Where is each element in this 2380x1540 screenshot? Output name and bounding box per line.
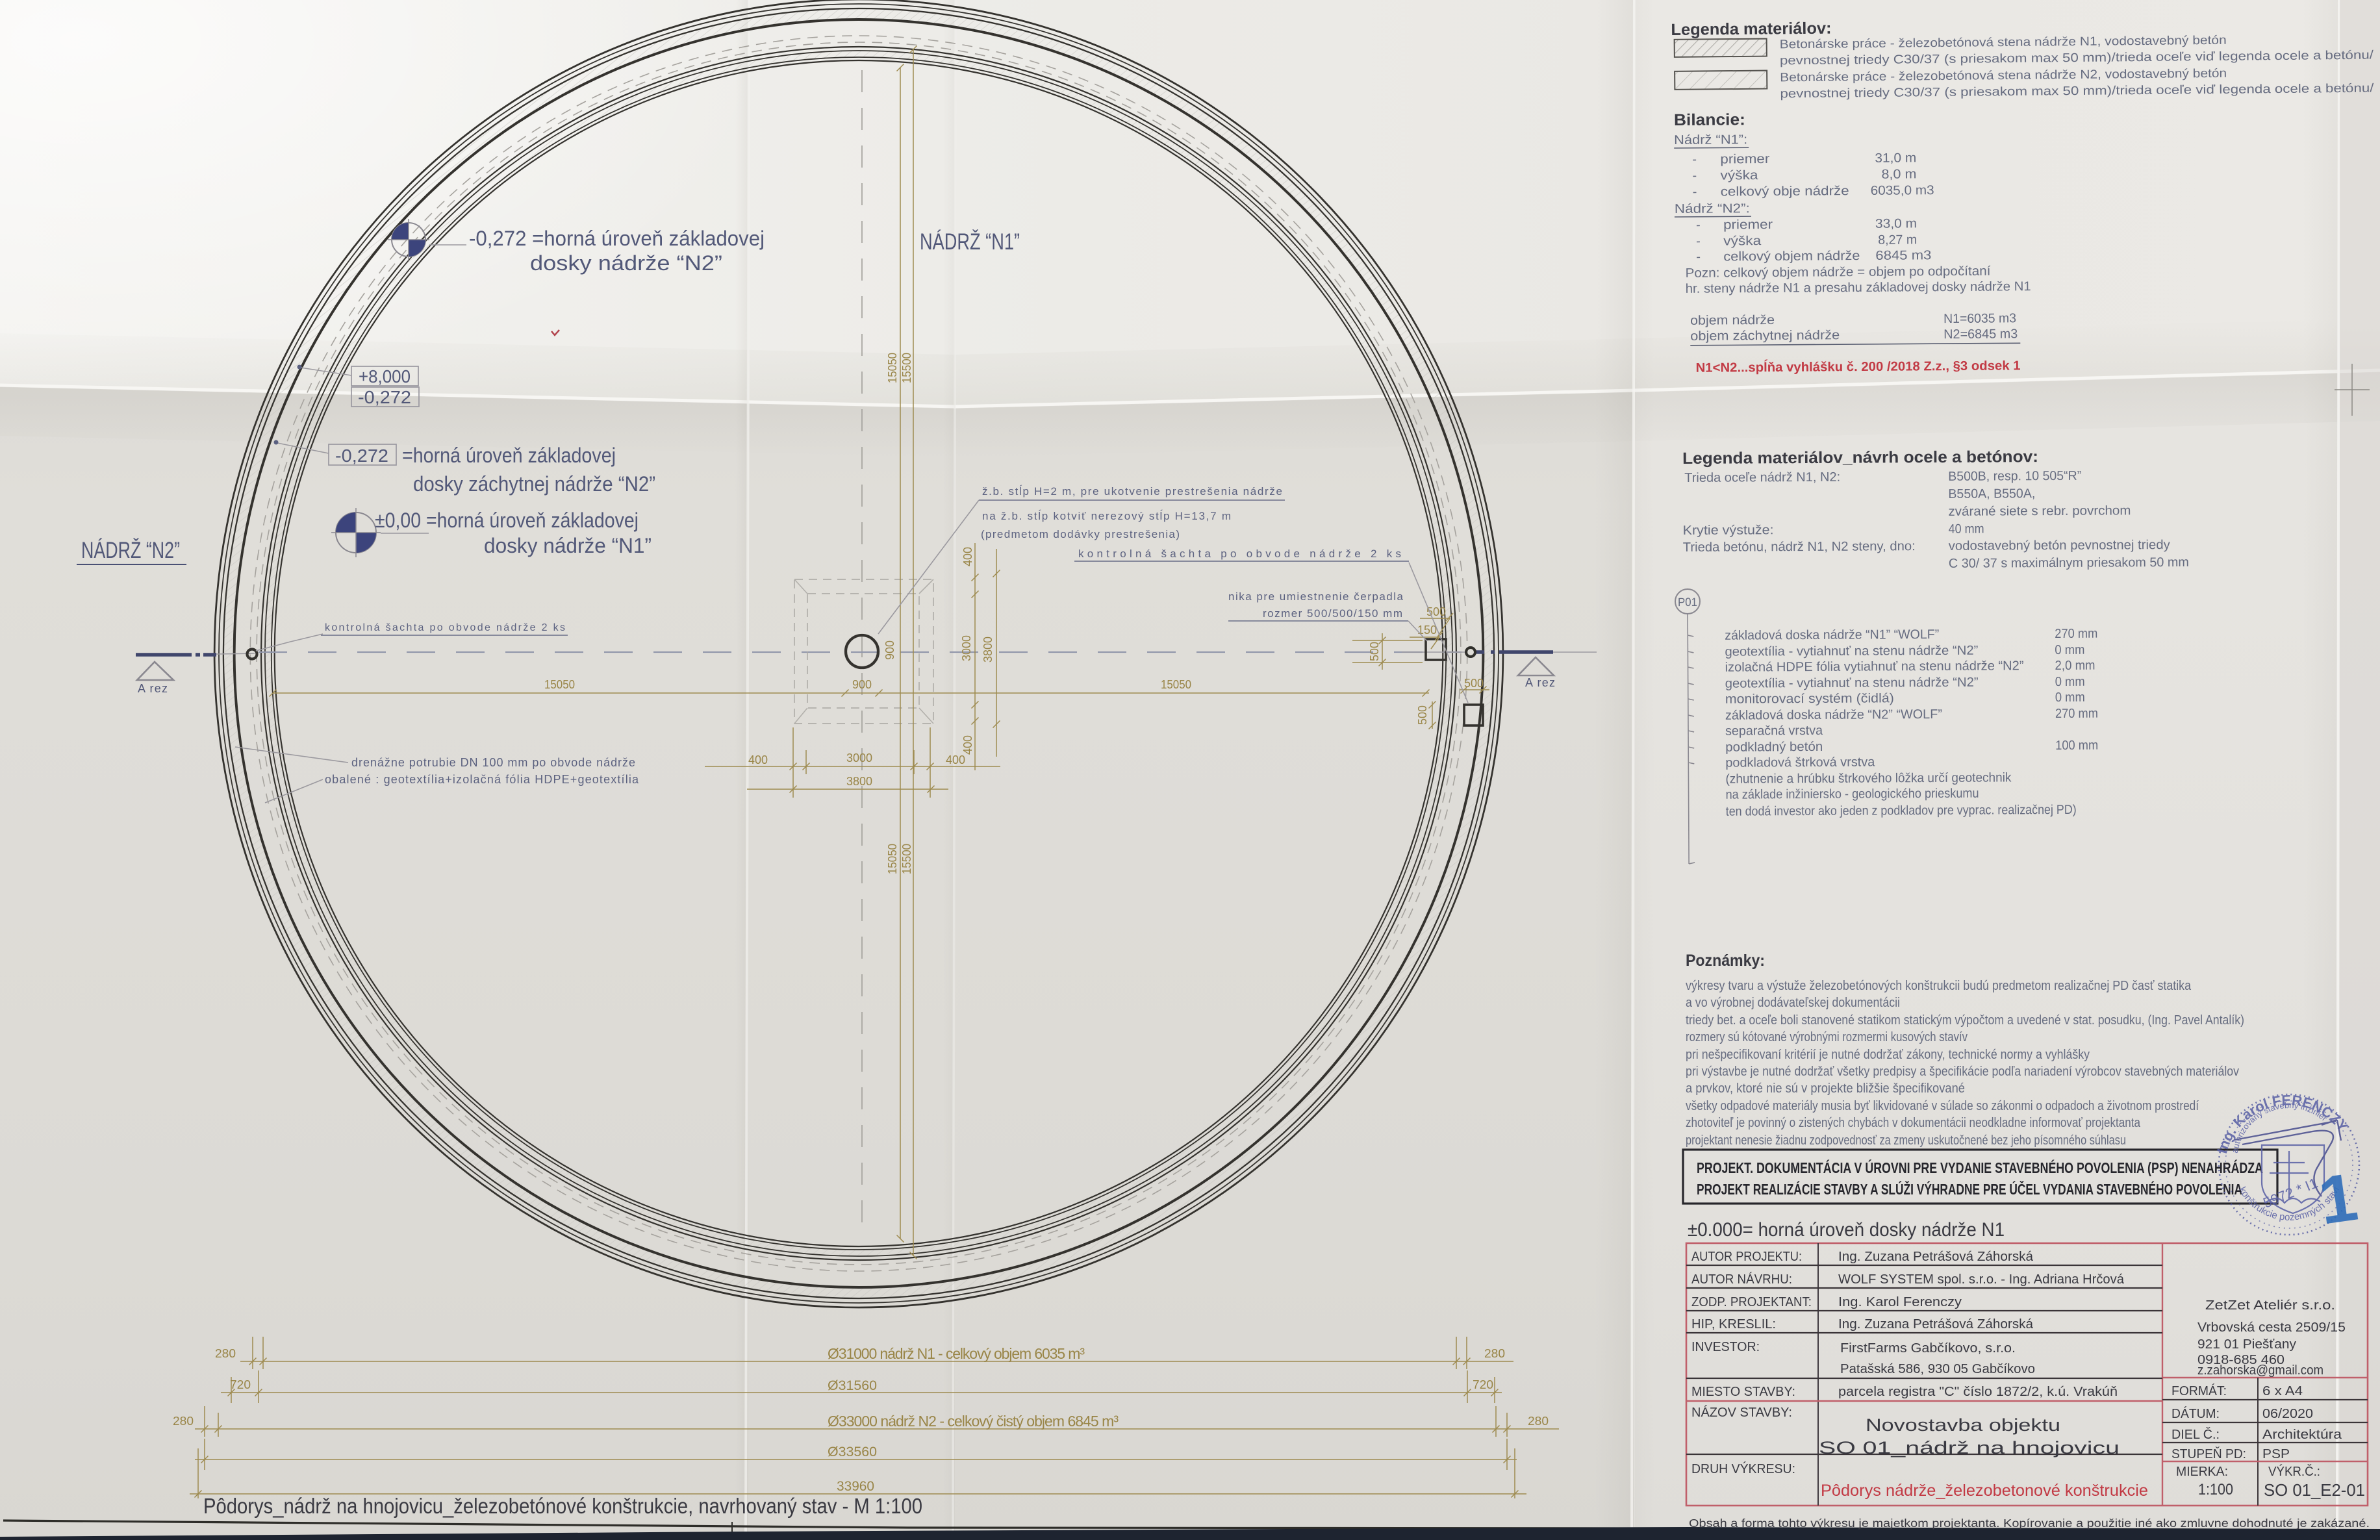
svg-text:8,0 m: 8,0 m (1881, 167, 1916, 181)
svg-text:720: 720 (230, 1378, 251, 1391)
svg-text:Novostavba objektu: Novostavba objektu (1866, 1415, 2060, 1435)
svg-text:Patašská 586, 930 05 Gabčíkovo: Patašská 586, 930 05 Gabčíkovo (1840, 1362, 2035, 1376)
svg-text:ZODP. PROJEKTANT:: ZODP. PROJEKTANT: (1691, 1295, 1812, 1309)
svg-text:SO 01_nádrž na hnojovicu: SO 01_nádrž na hnojovicu (1819, 1438, 2120, 1458)
svg-text:Bilancie:: Bilancie: (1674, 110, 1745, 129)
svg-text:6845 m3: 6845 m3 (1875, 248, 1931, 263)
svg-text:MIESTO STAVBY:: MIESTO STAVBY: (1691, 1385, 1795, 1399)
svg-text:PROJEKT REALIZÁCIE STAVBY A SL: PROJEKT REALIZÁCIE STAVBY A SLÚŽI VÝHRAD… (1697, 1180, 2242, 1198)
svg-text:drenážne potrubie DN 100 mm po: drenážne potrubie DN 100 mm po obvode ná… (351, 756, 635, 769)
svg-text:6 x A4: 6 x A4 (2262, 1384, 2303, 1398)
svg-text:vodostavebný betón pevnostnej: vodostavebný betón pevnostnej triedy (1949, 538, 2170, 553)
svg-text:Ø31560: Ø31560 (828, 1378, 877, 1393)
svg-text:všetky odpadové materiály musi: všetky odpadové materiály musia byť likv… (1686, 1099, 2199, 1113)
svg-text:Legenda materiálov:: Legenda materiálov: (1671, 19, 1831, 39)
svg-text:500: 500 (1368, 642, 1381, 661)
svg-text:Krytie výstuže:: Krytie výstuže: (1683, 523, 1774, 538)
svg-text:500: 500 (1416, 705, 1429, 725)
svg-text:280: 280 (173, 1415, 194, 1428)
svg-text:geotextília - vytiahnuť na ste: geotextília - vytiahnuť na stenu nádrže … (1725, 644, 1978, 659)
svg-text:DIEL Č.:: DIEL Č.: (2171, 1427, 2220, 1442)
svg-text:150: 150 (1417, 624, 1437, 637)
svg-text:-: - (1693, 185, 1697, 199)
svg-text:N2=6845 m3: N2=6845 m3 (1943, 327, 2018, 342)
svg-text:PSP: PSP (2262, 1447, 2290, 1461)
svg-text:Trieda oceľe nádrž N1, N2:: Trieda oceľe nádrž N1, N2: (1684, 470, 1840, 485)
svg-text:40 mm: 40 mm (1949, 522, 1984, 536)
svg-text:podkladný betón: podkladný betón (1725, 740, 1823, 755)
svg-text:Pozn: celkový objem nádrže = o: Pozn: celkový objem nádrže = objem po od… (1685, 264, 1991, 281)
svg-text:400: 400 (748, 753, 768, 766)
svg-text:na základe inžiniersko - geolo: na základe inžiniersko - geologického pr… (1726, 787, 1979, 802)
svg-text:15500: 15500 (900, 844, 913, 874)
svg-text:0 mm: 0 mm (2055, 690, 2085, 705)
svg-text:06/2020: 06/2020 (2262, 1407, 2313, 1421)
svg-text:triedy bet. a oceľe boli stano: triedy bet. a oceľe boli stanovené stati… (1686, 1013, 2244, 1028)
svg-text:NÁDRŽ “N2”: NÁDRŽ “N2” (81, 538, 180, 563)
svg-text:+8,000: +8,000 (359, 366, 411, 386)
svg-text:15500: 15500 (900, 353, 913, 383)
svg-text:270 mm: 270 mm (2055, 627, 2097, 641)
svg-text:Obsah a forma tohto výkresu je: Obsah a forma tohto výkresu je majetkom … (1689, 1517, 2370, 1530)
svg-text:Ø33560: Ø33560 (828, 1445, 877, 1459)
svg-text:0 mm: 0 mm (2055, 643, 2084, 657)
svg-text:VÝKR.Č.:: VÝKR.Č.: (2268, 1464, 2320, 1479)
svg-text:(zhutnenie a hrúbku štrkového: (zhutnenie a hrúbku štrkového lôžka určí… (1725, 770, 2012, 786)
svg-text:separačná vrstva: separačná vrstva (1725, 724, 1823, 738)
svg-text:ten dodá investor ako jeden z: ten dodá investor ako jeden z podkladov … (1726, 803, 2077, 819)
svg-text:33960: 33960 (837, 1479, 874, 1494)
svg-text:(predmetom dodávky prestrešeni: (predmetom dodávky prestrešenia) (981, 528, 1180, 540)
svg-text:hr. steny nádrže N1 a presahu: hr. steny nádrže N1 a presahu základovej… (1686, 279, 2031, 296)
svg-text:400: 400 (961, 735, 974, 755)
svg-text:na ž.b. stĺp kotviť nerezový s: na ž.b. stĺp kotviť nerezový stĺp H=13,7… (982, 510, 1231, 522)
svg-text:DRUH VÝKRESU:: DRUH VÝKRESU: (1691, 1461, 1795, 1476)
svg-text:celkový obje nádrže: celkový obje nádrže (1721, 184, 1849, 199)
svg-text:výška: výška (1723, 234, 1762, 248)
svg-text:INVESTOR:: INVESTOR: (1691, 1340, 1760, 1354)
svg-text:nika pre umiestnenie čerpadla: nika pre umiestnenie čerpadla (1228, 590, 1404, 603)
svg-text:15050: 15050 (1161, 678, 1191, 691)
svg-text:základová doska nádrže “N2” “W: základová doska nádrže “N2” “WOLF” (1725, 707, 1942, 723)
svg-text:WOLF SYSTEM spol. s.r.o. - Ing: WOLF SYSTEM spol. s.r.o. - Ing. Adriana … (1838, 1272, 2125, 1287)
svg-text:±0.000= horná úroveň dosky nád: ±0.000= horná úroveň dosky nádrže N1 (1688, 1219, 2005, 1241)
svg-text:-: - (1696, 234, 1701, 249)
svg-text:Ing. Zuzana Petrášová Záhorská: Ing. Zuzana Petrášová Záhorská (1838, 1317, 2034, 1332)
svg-text:priemer: priemer (1723, 218, 1773, 233)
svg-text:Ø31000 nádrž N1 - celkový obj: Ø31000 nádrž N1 - celkový objem 6035 m³ (828, 1345, 1085, 1362)
svg-text:Legenda materiálov_návrh ocele: Legenda materiálov_návrh ocele a betónov… (1682, 448, 2038, 468)
svg-text:N1=6035 m3: N1=6035 m3 (1943, 311, 2016, 326)
svg-text:izolačná HDPE fólia vytiahnuť: izolačná HDPE fólia vytiahnuť na stenu n… (1725, 659, 2023, 674)
svg-text:ZetZet Ateliér s.r.o.: ZetZet Ateliér s.r.o. (2205, 1298, 2335, 1313)
svg-text:280: 280 (1484, 1347, 1505, 1360)
svg-text:280: 280 (1528, 1415, 1549, 1428)
svg-text:dosky záchytnej nádrže “N2”: dosky záchytnej nádrže “N2” (413, 472, 655, 496)
svg-text:obalené : geotextília+izolačná: obalené : geotextília+izolačná fólia HDP… (325, 773, 639, 786)
svg-text:Ø33000 nádrž N2 - celkový čist: Ø33000 nádrž N2 - celkový čistý objem 68… (828, 1413, 1119, 1430)
svg-text:Vrbovská cesta 2509/15: Vrbovská cesta 2509/15 (2197, 1320, 2346, 1335)
svg-text:N1<N2...spĺňa vyhlášku č. 200: N1<N2...spĺňa vyhlášku č. 200 /2018 Z.z.… (1695, 357, 2020, 375)
svg-text:2,0 mm: 2,0 mm (2055, 659, 2095, 673)
svg-text:FirstFarms Gabčíkovo, s.r.o.: FirstFarms Gabčíkovo, s.r.o. (1840, 1341, 2016, 1356)
svg-text:Trieda betónu, nádrž N1, N2 st: Trieda betónu, nádrž N1, N2 steny, dno: (1683, 539, 1916, 555)
svg-text:podkladová štrková vrstva: podkladová štrková vrstva (1725, 755, 1875, 770)
svg-text:33,0 m: 33,0 m (1875, 216, 1917, 231)
svg-text:ž.b. stĺp H=2 m, pre ukotvenie: ž.b. stĺp H=2 m, pre ukotvenie prestreše… (982, 485, 1282, 498)
svg-text:31,0 m: 31,0 m (1875, 151, 1916, 165)
svg-text:DÁTUM:: DÁTUM: (2171, 1406, 2220, 1421)
svg-text:celkový objem nádrže: celkový objem nádrže (1723, 249, 1860, 264)
svg-text:921 01 Piešťany: 921 01 Piešťany (2197, 1337, 2296, 1352)
svg-text:=horná úroveň základovej: =horná úroveň základovej (402, 444, 616, 467)
svg-text:Ing. Zuzana Petrášová Záhorská: Ing. Zuzana Petrášová Záhorská (1838, 1250, 2034, 1264)
svg-text:3800: 3800 (846, 775, 872, 788)
svg-text:monitorovací systém (čidlá): monitorovací systém (čidlá) (1725, 691, 1894, 706)
svg-text:-: - (1696, 218, 1701, 233)
svg-text:dosky nádrže “N2”: dosky nádrže “N2” (530, 251, 722, 275)
svg-text:Pôdorys nádrže_železobetonové: Pôdorys nádrže_železobetonové konštrukci… (1821, 1482, 2148, 1500)
svg-text:Poznámky:: Poznámky: (1686, 952, 1765, 970)
svg-text:720: 720 (1473, 1378, 1493, 1391)
svg-text:AUTOR NÁVRHU:: AUTOR NÁVRHU: (1691, 1272, 1792, 1287)
svg-text:zhotoviteľ je povinný o zisten: zhotoviteľ je povinný o zistených chybác… (1686, 1116, 2141, 1130)
svg-text:pri nešpecifikovaní kritérií j: pri nešpecifikovaní kritérií je nutné do… (1686, 1048, 2090, 1062)
svg-text:280: 280 (215, 1347, 236, 1360)
svg-text:3000: 3000 (846, 751, 872, 764)
svg-text:HIP, KRESLIL:: HIP, KRESLIL: (1691, 1317, 1776, 1332)
svg-text:a prvkov, ktoré nie sú v proje: a prvkov, ktoré nie sú v projekte bližši… (1686, 1081, 1965, 1096)
svg-text:400: 400 (961, 547, 974, 566)
svg-text:P01: P01 (1678, 596, 1697, 609)
svg-text:A rez: A rez (1525, 676, 1555, 689)
svg-text:dosky nádrže “N1”: dosky nádrže “N1” (484, 534, 652, 557)
svg-text:6035,0 m3: 6035,0 m3 (1871, 183, 1934, 198)
svg-text:geotextília - vytiahnuť na ste: geotextília - vytiahnuť na stenu nádrže … (1725, 675, 1979, 691)
svg-text:400: 400 (946, 753, 965, 766)
svg-text:a vo výrobnej dodávateľskej do: a vo výrobnej dodávateľskej dokumentácii (1686, 996, 1900, 1010)
svg-text:NÁZOV STAVBY:: NÁZOV STAVBY: (1691, 1405, 1792, 1420)
svg-text:SO 01_E2-01: SO 01_E2-01 (2264, 1480, 2365, 1500)
svg-text:A rez: A rez (138, 682, 168, 695)
svg-text:15050: 15050 (886, 353, 899, 383)
svg-text:-0,272 =horná úroveň základove: -0,272 =horná úroveň základovej (469, 227, 765, 250)
svg-text:zvárané siete s rebr. povrchom: zvárané siete s rebr. povrchom (1948, 503, 2131, 518)
svg-text:B500B, resp. 10 505“R”: B500B, resp. 10 505“R” (1948, 469, 2081, 484)
svg-text:-: - (1692, 153, 1697, 167)
svg-text:±0,00 =horná úroveň základovej: ±0,00 =horná úroveň základovej (375, 509, 639, 532)
svg-text:B550A, B550A,: B550A, B550A, (1948, 486, 2035, 501)
svg-text:900: 900 (883, 640, 896, 660)
svg-text:15050: 15050 (544, 678, 575, 691)
svg-text:STUPEŇ PD:: STUPEŇ PD: (2171, 1446, 2246, 1461)
svg-text:-0,272: -0,272 (358, 387, 411, 407)
svg-text:900: 900 (852, 678, 872, 691)
svg-text:3000: 3000 (960, 635, 973, 661)
svg-text:500: 500 (1464, 677, 1484, 690)
svg-text:0 mm: 0 mm (2055, 675, 2085, 689)
svg-text:8,27 m: 8,27 m (1878, 233, 1917, 247)
svg-text:270 mm: 270 mm (2055, 707, 2098, 721)
svg-text:Ing. Karol Ferenczy: Ing. Karol Ferenczy (1838, 1295, 1962, 1309)
svg-text:-0,272: -0,272 (335, 446, 388, 466)
svg-text:rozmery sú kótované výrobnými: rozmery sú kótované výrobnými rozmermi k… (1686, 1030, 1968, 1044)
svg-text:výška: výška (1720, 168, 1758, 183)
svg-text:Architektúra: Architektúra (2262, 1428, 2342, 1442)
svg-text:1:100: 1:100 (2198, 1481, 2233, 1498)
svg-text:Pôdorys_nádrž na hnojovicu_žel: Pôdorys_nádrž na hnojovicu_železobetónov… (203, 1494, 922, 1518)
svg-text:3800: 3800 (981, 637, 994, 663)
svg-text:Nádrž “N2”:: Nádrž “N2”: (1675, 201, 1750, 216)
svg-text:-: - (1696, 250, 1701, 264)
svg-text:C 30/ 37 s maximálnym priesako: C 30/ 37 s maximálnym priesakom 50 mm (1949, 555, 2189, 571)
svg-text:100 mm: 100 mm (2055, 738, 2098, 753)
svg-text:PROJEKT. DOKUMENTÁCIA V ÚROVNI: PROJEKT. DOKUMENTÁCIA V ÚROVNI PRE VYDAN… (1697, 1159, 2263, 1176)
svg-text:parcela registra "C" číslo 187: parcela registra "C" číslo 1872/2, k.ú. … (1838, 1385, 2118, 1399)
svg-text:MIERKA:: MIERKA: (2176, 1465, 2228, 1479)
svg-text:z.zahorska@gmail.com: z.zahorska@gmail.com (2197, 1363, 2323, 1378)
svg-text:NÁDRŽ “N1”: NÁDRŽ “N1” (920, 229, 1020, 255)
svg-text:výkresy tvaru a výstuže železo: výkresy tvaru a výstuže železobetónových… (1686, 979, 2192, 993)
svg-text:objem záchytnej nádrže: objem záchytnej nádrže (1690, 328, 1840, 344)
svg-text:15050: 15050 (886, 844, 899, 874)
svg-text:projektant nenesie žiadnu zodp: projektant nenesie žiadnu zodpovednosť z… (1686, 1133, 2126, 1148)
svg-text:AUTOR PROJEKTU:: AUTOR PROJEKTU: (1691, 1250, 1802, 1264)
svg-text:rozmer 500/500/150 mm: rozmer 500/500/150 mm (1263, 607, 1402, 620)
svg-text:objem nádrže: objem nádrže (1690, 313, 1775, 328)
svg-text:-: - (1692, 169, 1697, 183)
svg-text:Nádrž “N1”:: Nádrž “N1”: (1674, 133, 1747, 147)
svg-text:základová doska nádrže “N1” “W: základová doska nádrže “N1” “WOLF” (1725, 627, 1939, 643)
svg-text:FORMÁT:: FORMÁT: (2171, 1383, 2227, 1398)
svg-text:pri výstavbe je nutné dodržať: pri výstavbe je nutné dodržať všetky pre… (1686, 1065, 2239, 1079)
svg-text:priemer: priemer (1720, 152, 1770, 167)
